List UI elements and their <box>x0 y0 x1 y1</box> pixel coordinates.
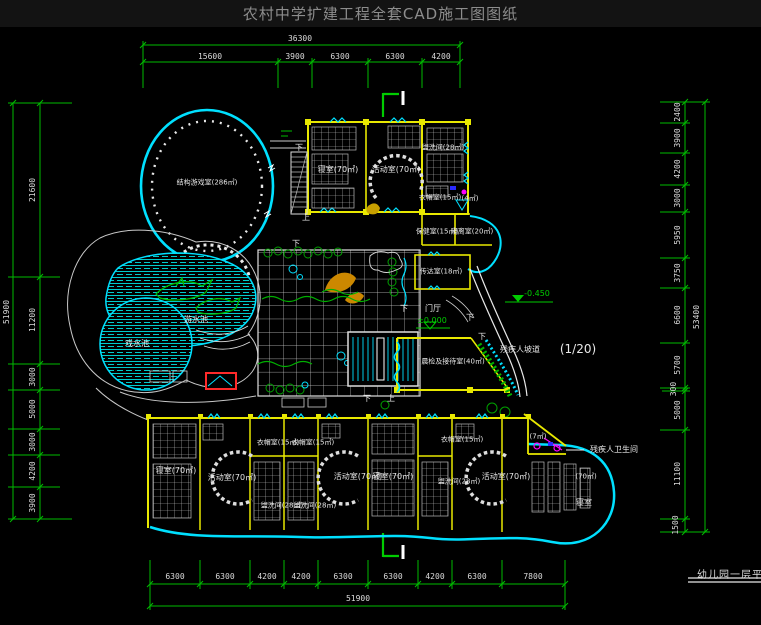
level-minus-label: -0.450 <box>524 290 550 298</box>
stair-down-label: 下 <box>363 395 371 403</box>
dim-bottom-seg-5: 6300 <box>383 573 402 581</box>
stair-down-label: 下 <box>295 144 303 152</box>
dim-left-total: 51900 <box>3 300 11 324</box>
room-label-bedroom-1: 寝室(70㎡) <box>318 166 358 174</box>
dim-top-seg-1: 3900 <box>285 53 304 61</box>
room-label-cloakroom-2b: 衣帽室(15㎡) <box>292 440 334 447</box>
stair-up-label: 上 <box>387 395 395 403</box>
dim-bottom-seg-7: 6300 <box>467 573 486 581</box>
dim-right-seg-1: 3900 <box>674 128 682 147</box>
dim-right-total: 53400 <box>693 305 701 329</box>
dim-bottom-seg-0: 6300 <box>165 573 184 581</box>
room-label-pool-small: 戏水池 <box>125 340 149 348</box>
room-label-entrance-hall: 门厅 <box>425 305 441 313</box>
dim-right-seg-2: 4200 <box>674 159 682 178</box>
stair-down-label: 下 <box>466 314 474 322</box>
dim-right-seg-9: 5000 <box>674 400 682 419</box>
room-label-isolation: 隔离室(20㎡) <box>451 229 493 236</box>
dim-right-seg-6: 6600 <box>674 305 682 324</box>
room-label-washroom-1: 盥洗间(28㎡) <box>422 145 464 152</box>
dim-left-seg-5: 4200 <box>29 461 37 480</box>
dim-right-seg-3: 3000 <box>674 188 682 207</box>
dim-bottom-seg-8: 7800 <box>523 573 542 581</box>
stair-up-label: 上 <box>302 214 310 222</box>
room-label-bedroom-3-area: (70㎡) <box>575 474 596 481</box>
floor-plan-canvas <box>0 0 761 625</box>
dim-left-seg-4: 3000 <box>29 432 37 451</box>
room-label-activity-1: 活动室(70㎡) <box>372 166 420 174</box>
dim-left-seg-6: 3900 <box>29 493 37 512</box>
room-label-shaft: (4㎡) <box>462 196 479 203</box>
page-title: 农村中学扩建工程全套CAD施工图图纸 <box>243 3 518 24</box>
room-label-wc-small: (7㎡) <box>530 434 547 441</box>
room-label-activity-2: 活动室(70㎡) <box>208 474 256 482</box>
dim-right-seg-8: 300 <box>670 382 678 396</box>
dim-top-seg-3: 6300 <box>385 53 404 61</box>
dim-bottom-seg-4: 6300 <box>333 573 352 581</box>
dim-top-seg-2: 6300 <box>330 53 349 61</box>
dim-left-seg-3: 5000 <box>29 399 37 418</box>
cad-viewer: 农村中学扩建工程全套CAD施工图图纸 <box>0 0 761 625</box>
room-label-accessible-wc: 残疾人卫生间 <box>590 446 638 454</box>
dim-top-seg-4: 4200 <box>431 53 450 61</box>
level-zero-label: ±0.000 <box>417 317 447 325</box>
room-label-washroom-3: 盥洗间(28㎡) <box>438 479 480 486</box>
room-label-washroom-2b: 盥洗间(28㎡) <box>294 503 336 510</box>
drawing-title: 幼儿园一层平面图 <box>697 566 761 581</box>
dim-bottom-seg-6: 4200 <box>425 573 444 581</box>
dim-right-seg-10: 11100 <box>674 462 682 486</box>
ramp-scale-label: (1/20) <box>560 343 596 355</box>
stair-down-label: 下 <box>292 240 300 248</box>
dim-top-total: 36300 <box>288 35 312 43</box>
room-label-activity-4: 活动室(70㎡) <box>482 473 530 481</box>
room-label-play-hall: 结构游戏室(286㎡) <box>177 180 238 187</box>
dim-left-seg-0: 21600 <box>29 178 37 202</box>
room-label-bedroom-mid: 寝室(70㎡) <box>373 473 413 481</box>
dim-bottom-seg-2: 4200 <box>257 573 276 581</box>
room-label-cloakroom-3: 衣帽室(15㎡) <box>441 437 483 444</box>
dim-right-seg-7: 5700 <box>674 355 682 374</box>
dim-right-seg-5: 3750 <box>674 263 682 282</box>
pool-area <box>68 230 261 420</box>
dim-right-seg-0: 2400 <box>674 102 682 121</box>
ramp-label: 残疾人坡道 <box>500 346 540 354</box>
stair-down-label: 下 <box>478 333 486 341</box>
dim-right-seg-4: 5950 <box>674 225 682 244</box>
dim-right-seg-11: 1500 <box>672 515 680 534</box>
dim-top-seg-0: 15600 <box>198 53 222 61</box>
dim-left-seg-1: 11200 <box>29 308 37 332</box>
dim-bottom-total: 51900 <box>346 595 370 603</box>
room-label-cloakroom-1: 衣帽室(15㎡) <box>419 195 461 202</box>
dim-bottom-seg-3: 4200 <box>291 573 310 581</box>
room-label-morning-check: 晨检及接待室(40㎡) <box>421 359 484 366</box>
page-header: 农村中学扩建工程全套CAD施工图图纸 <box>0 0 761 27</box>
room-label-bedroom-2: 寝室(70㎡) <box>156 467 196 475</box>
stair-down-label: 下 <box>400 305 408 313</box>
dim-left-seg-2: 3000 <box>29 367 37 386</box>
room-label-bedroom-3: 寝室 <box>576 499 592 507</box>
room-label-pool-big: 游水池 <box>184 316 208 324</box>
room-label-reception: 传达室(18㎡) <box>420 269 462 276</box>
dim-bottom-seg-1: 6300 <box>215 573 234 581</box>
